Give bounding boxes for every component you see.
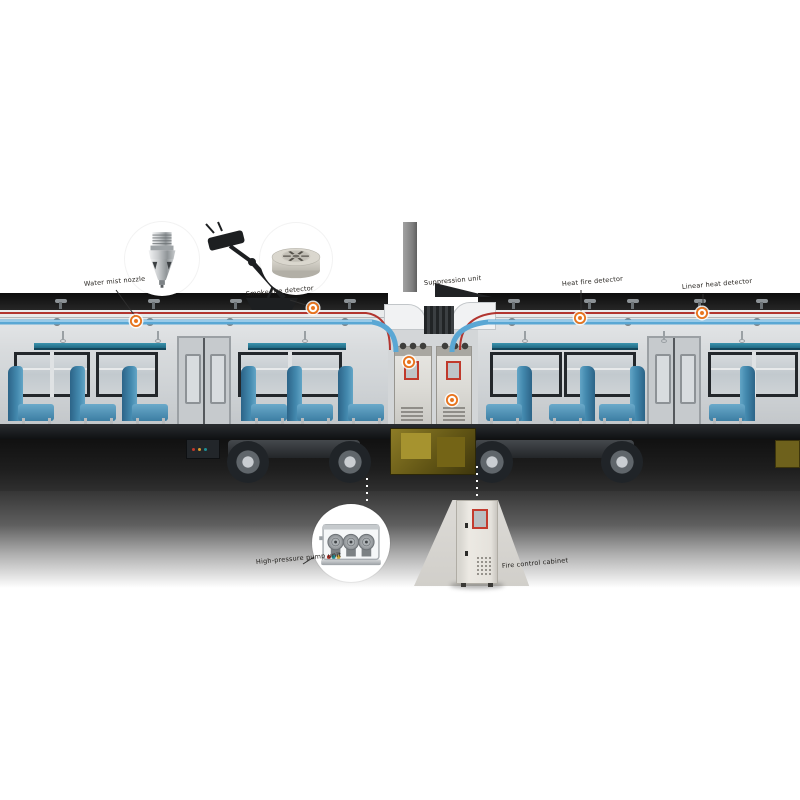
riser-pipe (403, 222, 417, 292)
passenger-seat (338, 366, 386, 430)
cabinet-display (472, 509, 488, 529)
dotted-leader (366, 478, 368, 504)
hand-strap (663, 331, 665, 340)
train-wheel (329, 441, 371, 483)
luggage-rack (248, 343, 346, 350)
roof-vent (694, 299, 706, 303)
callout-pump-unit (312, 504, 390, 582)
luggage-rack (492, 343, 638, 350)
gangway-bellows (424, 306, 454, 334)
luggage-rack (710, 343, 800, 350)
hotspot-marker-heat-detector[interactable] (574, 312, 586, 324)
passenger-door (177, 336, 231, 437)
cabinet-vent-grille (476, 556, 493, 575)
passenger-seat (597, 366, 645, 430)
far-roof-edge-right-car (478, 293, 800, 310)
roof-vent (508, 299, 520, 303)
suppression-cabinet-2 (436, 346, 472, 428)
pipe-clamp (146, 318, 154, 326)
roof-vent (584, 299, 596, 303)
pipe-clamp (753, 318, 761, 326)
underfloor-tank-highlighted (390, 428, 476, 475)
soft-ground-shadow (0, 491, 800, 588)
passenger-seat (484, 366, 532, 430)
car-end-roof-left (384, 304, 426, 330)
label-suppression-unit: Suppression unit (424, 275, 482, 286)
hotspot-marker-roof[interactable] (307, 302, 319, 314)
roof-vent (148, 299, 160, 303)
passenger-seat (70, 366, 118, 430)
passenger-seat (122, 366, 170, 430)
pipe-clamp (341, 318, 349, 326)
pipe-clamp (53, 318, 61, 326)
hotspot-marker-cabinet-2[interactable] (446, 394, 458, 406)
callout-control-cabinet (456, 500, 498, 584)
callout-nozzle (125, 222, 199, 296)
passenger-door (647, 336, 701, 437)
luggage-rack (34, 343, 166, 350)
roof-vent (55, 299, 67, 303)
hotspot-marker-linear-detector[interactable] (696, 307, 708, 319)
roof-vent (756, 299, 768, 303)
train-wheel (601, 441, 643, 483)
pipe-clamp (226, 318, 234, 326)
hand-strap (741, 331, 743, 340)
underfloor-equipment-box (186, 439, 220, 459)
roof-vent (344, 299, 356, 303)
dotted-leader (476, 466, 478, 500)
hand-strap (157, 331, 159, 340)
passenger-seat (287, 366, 335, 430)
hand-strap (524, 331, 526, 340)
passenger-seat (241, 366, 289, 430)
label-linear-detector: Linear heat detector (682, 278, 753, 291)
hand-strap (304, 331, 306, 340)
passenger-seat (8, 366, 56, 430)
label-heat-detector: Heat fire detector (562, 276, 624, 288)
hand-strap (62, 331, 64, 340)
smoke-detector-icon (267, 236, 325, 282)
water-mist-nozzle-icon (139, 230, 185, 288)
pump-module-icon (319, 517, 383, 569)
callout-smoke-detector (260, 223, 332, 295)
passenger-seat (707, 366, 755, 430)
hotspot-marker-cabinet-1[interactable] (403, 356, 415, 368)
train-wheel (227, 441, 269, 483)
pipe-clamp (624, 318, 632, 326)
car-end-roof-right (452, 302, 496, 330)
roof-vent (230, 299, 242, 303)
train-fire-system-diagram: Water mist nozzle Smoke fire detector Su… (0, 0, 800, 800)
hotspot-marker-nozzle[interactable] (130, 315, 142, 327)
passenger-seat (547, 366, 595, 430)
roof-vent (627, 299, 639, 303)
pipe-clamp (508, 318, 516, 326)
underfloor-equipment-right (775, 440, 800, 468)
